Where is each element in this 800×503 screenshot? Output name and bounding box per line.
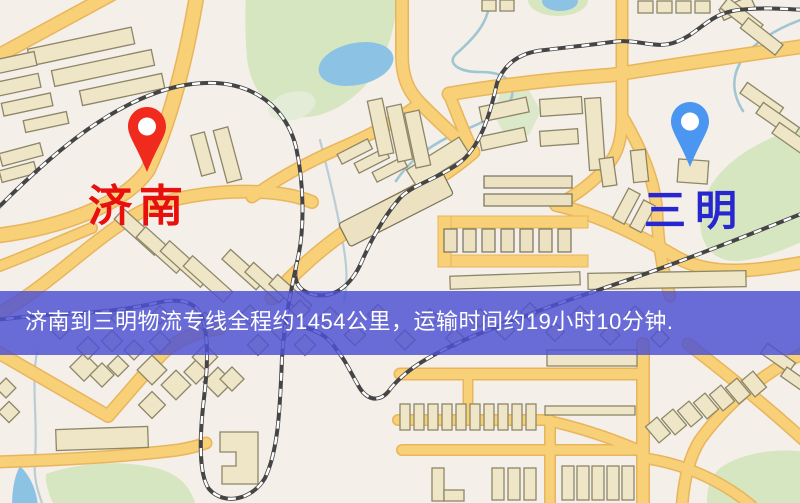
- destination-pin-shape: [671, 102, 709, 167]
- destination-pin-icon[interactable]: [670, 101, 710, 169]
- route-info-banner: 济南到三明物流专线全程约1454公里，运输时间约19小时10分钟.: [0, 291, 800, 355]
- destination-label: 三明: [644, 177, 746, 238]
- origin-label: 济南: [88, 170, 190, 234]
- origin-pin-icon[interactable]: [127, 106, 167, 174]
- destination-pin-hole: [681, 113, 699, 131]
- logistics-route-map: 济南 三明 济南到三明物流专线全程约1454公里，运输时间约19小时10分钟.: [0, 0, 800, 503]
- origin-pin-hole: [138, 118, 156, 136]
- origin-pin-shape: [128, 107, 166, 172]
- map-background: [0, 0, 800, 503]
- route-info-text: 济南到三明物流专线全程约1454公里，运输时间约19小时10分钟.: [0, 304, 674, 336]
